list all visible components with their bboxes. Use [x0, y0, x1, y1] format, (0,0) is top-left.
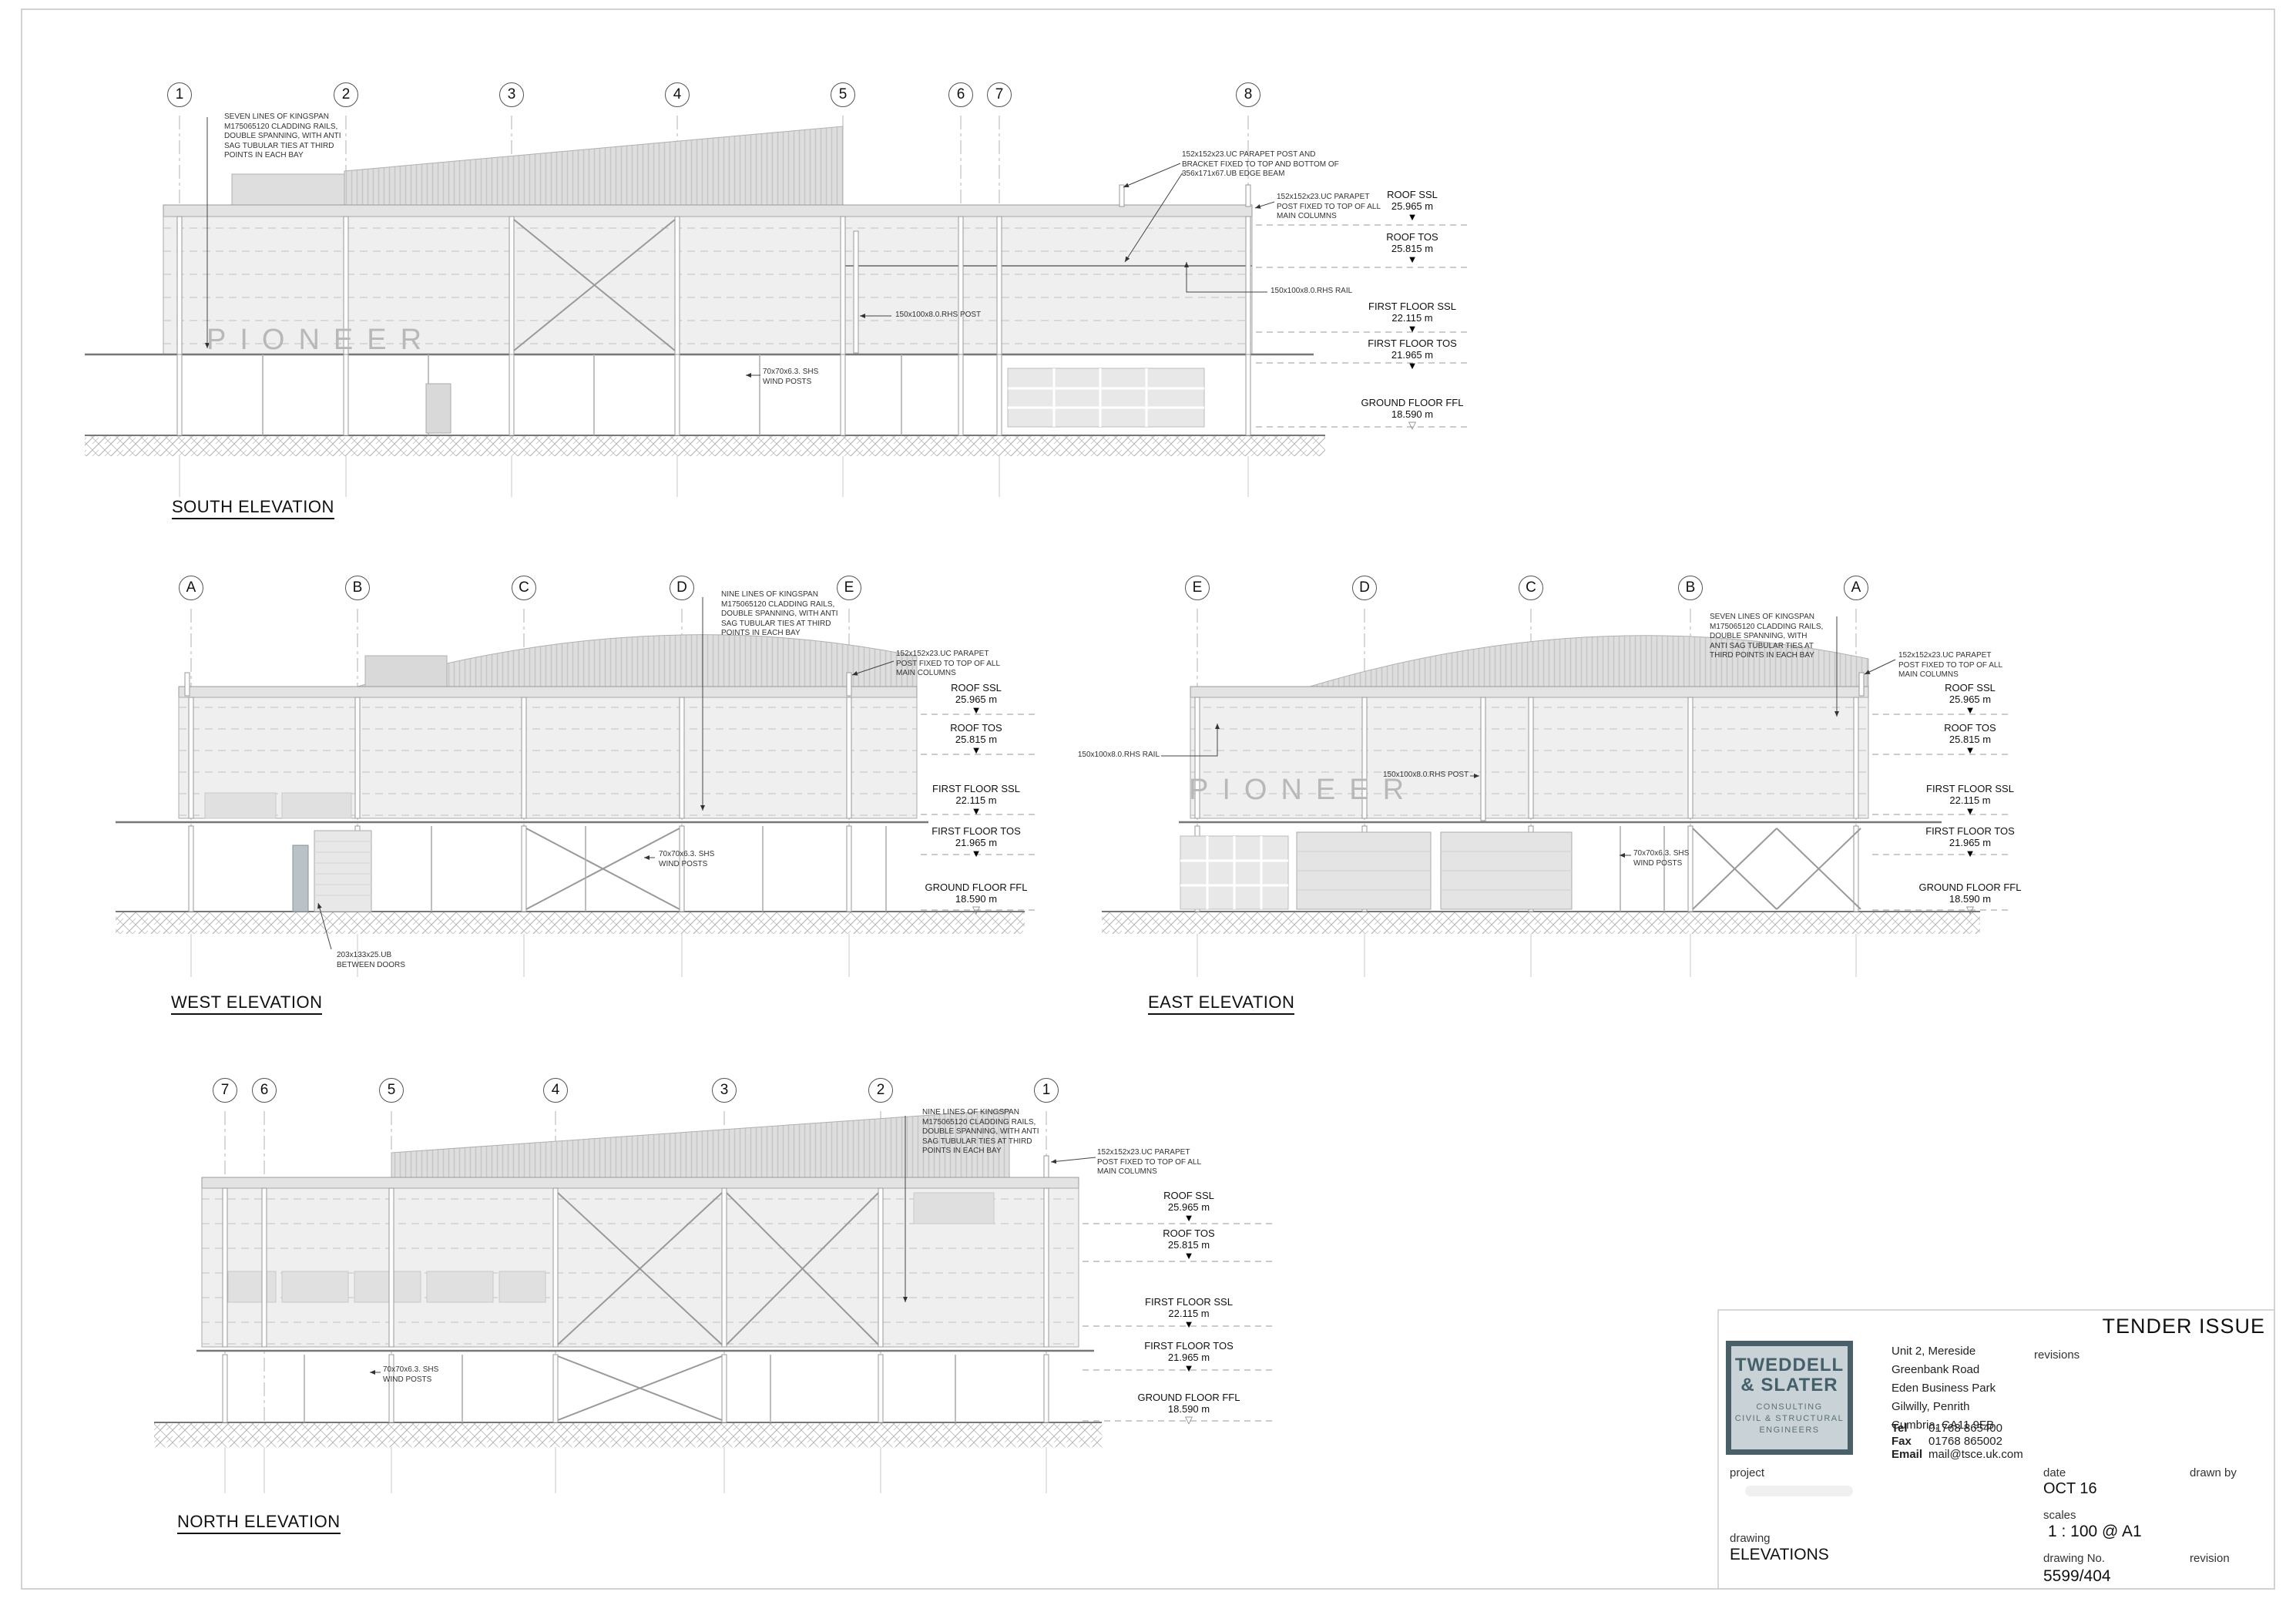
project-value-redacted: [1745, 1486, 1853, 1496]
firm-address: Unit 2, Mereside Greenbank Road Eden Bus…: [1892, 1342, 1996, 1435]
level-marker-icon: ▼: [1905, 705, 2036, 715]
west-grid-bubble-3: D: [670, 576, 694, 600]
west-grid-bubble-0: A: [179, 576, 203, 600]
level-marker-icon: ▼: [911, 806, 1042, 816]
south-level-marker-2: FIRST FLOOR SSL 22.115 m ▼: [1347, 301, 1478, 334]
note-rhs-rail-south: 150x100x8.0.RHS RAIL: [1271, 287, 1378, 297]
level-marker-icon: ▼: [1123, 1251, 1254, 1261]
note-seven-lines-east: SEVEN LINES OF KINGSPAN M175065120 CLADD…: [1710, 613, 1825, 661]
note-wind-posts-north: 70x70x6.3. SHS WIND POSTS: [383, 1365, 445, 1385]
level-marker-icon: ▼: [1347, 212, 1478, 222]
level-marker-icon: ▼: [1347, 324, 1478, 334]
address-line: Gilwilly, Penrith: [1892, 1398, 1996, 1416]
north-grid-bubble-6: 1: [1034, 1078, 1059, 1103]
south-grid-bubble-0: 1: [167, 82, 192, 107]
note-parapet-post-east: 152x152x23.UC PARAPET POST FIXED TO TOP …: [1898, 651, 2006, 680]
level-marker-icon: ▼: [911, 705, 1042, 715]
note-wind-posts-south: 70x70x6.3. SHS WIND POSTS: [763, 368, 824, 387]
level-marker-icon: ▽: [911, 905, 1042, 915]
west-level-marker-4: GROUND FLOOR FFL 18.590 m ▽: [911, 882, 1042, 915]
west-grid-bubble-1: B: [345, 576, 370, 600]
east-level-marker-3: FIRST FLOOR TOS 21.965 m ▼: [1905, 825, 2036, 858]
address-line: Greenbank Road: [1892, 1361, 1996, 1379]
address-line: Eden Business Park: [1892, 1379, 1996, 1398]
note-rhs-post-south: 150x100x8.0.RHS POST: [895, 311, 1003, 321]
contact-fax: Fax01768 865002: [1892, 1435, 2023, 1448]
date-value: OCT 16: [2043, 1480, 2097, 1498]
east-grid-bubble-2: C: [1519, 576, 1543, 600]
level-marker-icon: ▼: [1123, 1213, 1254, 1223]
south-grid-bubble-4: 5: [831, 82, 855, 107]
level-marker-icon: ▼: [1347, 361, 1478, 371]
address-line: Unit 2, Mereside: [1892, 1342, 1996, 1361]
note-parapet-post-north: 152x152x23.UC PARAPET POST FIXED TO TOP …: [1097, 1148, 1205, 1177]
north-elevation-title: NORTH ELEVATION: [177, 1512, 341, 1534]
west-level-marker-3: FIRST FLOOR TOS 21.965 m ▼: [911, 825, 1042, 858]
firm-contact: Tel01768 865400 Fax01768 865002 Emailmai…: [1892, 1422, 2023, 1461]
level-marker-icon: ▽: [1905, 905, 2036, 915]
north-level-marker-3: FIRST FLOOR TOS 21.965 m ▼: [1123, 1340, 1254, 1373]
north-grid-bubble-2: 5: [379, 1078, 404, 1103]
contact-tel: Tel01768 865400: [1892, 1422, 2023, 1435]
north-grid-bubble-4: 3: [712, 1078, 737, 1103]
drawing-value: ELEVATIONS: [1730, 1546, 1829, 1564]
south-grid-bubble-5: 6: [948, 82, 973, 107]
note-nine-lines-west: NINE LINES OF KINGSPAN M175065120 CLADDI…: [721, 590, 843, 639]
contact-email: Emailmail@tsce.uk.com: [1892, 1448, 2023, 1461]
scales-value: 1 : 100 @ A1: [2048, 1523, 2142, 1541]
south-grid-bubble-1: 2: [334, 82, 358, 107]
firm-logo: TWEDDELL & SLATER CONSULTING CIVIL & STR…: [1726, 1341, 1853, 1455]
note-wind-posts-east: 70x70x6.3. SHS WIND POSTS: [1633, 849, 1695, 868]
level-marker-icon: ▼: [1123, 1363, 1254, 1373]
east-level-marker-2: FIRST FLOOR SSL 22.115 m ▼: [1905, 783, 2036, 816]
date-label: date: [2043, 1466, 2066, 1479]
west-elevation-title: WEST ELEVATION: [171, 992, 322, 1015]
west-grid-bubble-2: C: [512, 576, 536, 600]
note-rhs-rail-east: 150x100x8.0.RHS RAIL: [1075, 751, 1160, 761]
revision-label: revision: [2190, 1552, 2230, 1565]
firm-sub-line1: CONSULTING: [1731, 1402, 1848, 1413]
project-label: project: [1730, 1466, 1764, 1479]
east-level-marker-0: ROOF SSL 25.965 m ▼: [1905, 682, 2036, 715]
drawn-by-label: drawn by: [2190, 1466, 2237, 1479]
south-grid-bubble-3: 4: [665, 82, 690, 107]
level-marker-icon: ▼: [1905, 745, 2036, 755]
note-nine-lines-north: NINE LINES OF KINGSPAN M175065120 CLADDI…: [922, 1108, 1044, 1157]
drawing-no-value: 5599/404: [2043, 1567, 2111, 1586]
note-ub-doors-west: 203x133x25.UB BETWEEN DOORS: [337, 951, 421, 970]
note-parapet-bracket-south: 152x152x23.UC PARAPET POST AND BRACKET F…: [1182, 150, 1340, 180]
east-elevation-title: EAST ELEVATION: [1148, 992, 1294, 1015]
west-level-marker-1: ROOF TOS 25.815 m ▼: [911, 722, 1042, 755]
level-marker-icon: ▼: [1905, 848, 2036, 858]
north-level-marker-4: GROUND FLOOR FFL 18.590 m ▽: [1123, 1392, 1254, 1425]
drawing-sheet: PIONEER PIONEER SEVEN LINES OF KINGSPAN …: [0, 0, 2296, 1622]
south-grid-bubble-6: 7: [987, 82, 1012, 107]
drawing-label: drawing: [1730, 1532, 1771, 1545]
level-marker-icon: ▼: [1123, 1319, 1254, 1329]
level-marker-icon: ▼: [911, 745, 1042, 755]
tender-issue-stamp: TENDER ISSUE: [2003, 1315, 2265, 1338]
scales-label: scales: [2043, 1509, 2076, 1522]
south-level-marker-1: ROOF TOS 25.815 m ▼: [1347, 231, 1478, 264]
level-marker-icon: ▼: [911, 848, 1042, 858]
east-grid-bubble-1: D: [1352, 576, 1377, 600]
note-parapet-post-west: 152x152x23.UC PARAPET POST FIXED TO TOP …: [896, 650, 1004, 679]
firm-sub-line2: CIVIL & STRUCTURAL: [1731, 1413, 1848, 1425]
east-grid-bubble-0: E: [1185, 576, 1210, 600]
level-marker-icon: ▽: [1123, 1415, 1254, 1425]
revisions-label: revisions: [2034, 1348, 2079, 1362]
level-marker-icon: ▽: [1347, 420, 1478, 430]
north-grid-bubble-3: 4: [543, 1078, 568, 1103]
north-grid-bubble-1: 6: [252, 1078, 277, 1103]
west-level-marker-0: ROOF SSL 25.965 m ▼: [911, 682, 1042, 715]
note-wind-posts-west: 70x70x6.3. SHS WIND POSTS: [659, 850, 720, 869]
south-elevation-title: SOUTH ELEVATION: [172, 497, 334, 519]
north-level-marker-2: FIRST FLOOR SSL 22.115 m ▼: [1123, 1296, 1254, 1329]
east-grid-bubble-4: A: [1844, 576, 1868, 600]
note-seven-lines-south: SEVEN LINES OF KINGSPAN M175065120 CLADD…: [224, 112, 346, 161]
west-grid-bubble-4: E: [837, 576, 861, 600]
north-grid-bubble-0: 7: [213, 1078, 237, 1103]
east-grid-bubble-3: B: [1678, 576, 1703, 600]
south-level-marker-3: FIRST FLOOR TOS 21.965 m ▼: [1347, 337, 1478, 371]
north-level-marker-1: ROOF TOS 25.815 m ▼: [1123, 1227, 1254, 1261]
east-level-marker-1: ROOF TOS 25.815 m ▼: [1905, 722, 2036, 755]
firm-sub-line3: ENGINEERS: [1731, 1425, 1848, 1436]
level-marker-icon: ▼: [1905, 806, 2036, 816]
pioneer-signage-south: PIONEER: [206, 324, 435, 357]
note-rhs-post-east: 150x100x8.0.RHS POST: [1383, 771, 1472, 781]
south-grid-bubble-2: 3: [499, 82, 524, 107]
south-level-marker-4: GROUND FLOOR FFL 18.590 m ▽: [1347, 397, 1478, 430]
drawing-no-label: drawing No.: [2043, 1552, 2105, 1565]
north-grid-bubble-5: 2: [868, 1078, 893, 1103]
south-grid-bubble-7: 8: [1236, 82, 1260, 107]
west-level-marker-2: FIRST FLOOR SSL 22.115 m ▼: [911, 783, 1042, 816]
east-level-marker-4: GROUND FLOOR FFL 18.590 m ▽: [1905, 882, 2036, 915]
north-level-marker-0: ROOF SSL 25.965 m ▼: [1123, 1190, 1254, 1223]
level-marker-icon: ▼: [1347, 254, 1478, 264]
south-level-marker-0: ROOF SSL 25.965 m ▼: [1347, 189, 1478, 222]
firm-name-line1: TWEDDELL: [1731, 1355, 1848, 1375]
firm-name-line2: & SLATER: [1731, 1375, 1848, 1395]
